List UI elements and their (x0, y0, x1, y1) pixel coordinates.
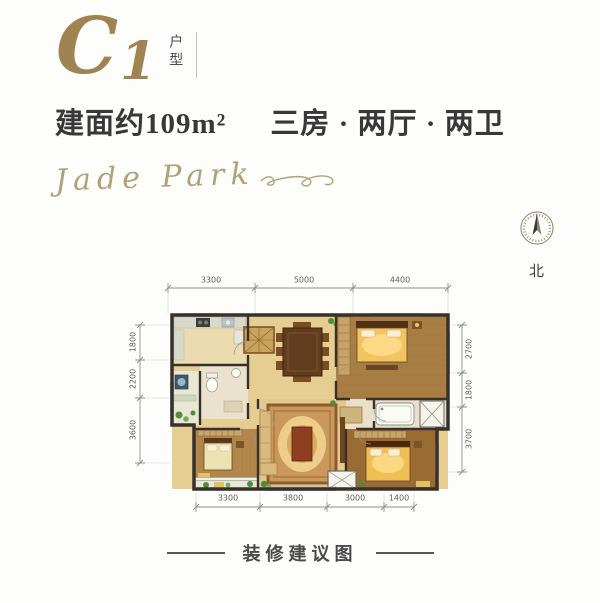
layout-text: 三房 · 两厅 · 两卫 (270, 100, 504, 142)
caption-line-left (167, 552, 225, 554)
wardrobe-icon (198, 430, 242, 436)
footer-caption: 装修建议图 (0, 540, 600, 566)
brand-logo: Jade Park (55, 160, 339, 195)
unit-code-number: 1 (120, 36, 156, 88)
dim-label-left-2: 2200 (129, 369, 138, 389)
plant-icon (328, 318, 334, 324)
dim-label-left-1: 1800 (129, 332, 138, 352)
floor-plan (170, 313, 452, 493)
bed-icon (204, 438, 232, 443)
coffee-table-icon (292, 427, 312, 461)
dim-label-bottom-2: 3800 (283, 494, 303, 503)
caption-line-right (376, 552, 434, 554)
bed-icon (356, 321, 408, 328)
compass: 北 (512, 203, 562, 281)
wardrobe-icon (338, 317, 350, 375)
caption-text: 装修建议图 (243, 540, 358, 566)
dim-label-top-1: 3300 (201, 276, 221, 285)
dim-label-top-2: 5000 (294, 276, 314, 285)
dim-label-bottom-1: 3300 (218, 494, 238, 503)
brand-logo-text: Jade Park (54, 157, 255, 199)
unit-code-letter: C (56, 8, 118, 86)
flourish-icon (259, 163, 339, 193)
wardrobe-icon (354, 431, 406, 438)
dim-label-bottom-3: 3000 (345, 494, 365, 503)
plant-icon (203, 482, 209, 488)
dim-label-left-3: 3600 (129, 420, 138, 440)
plant-icon (261, 481, 267, 487)
bay-window (328, 471, 356, 489)
area-text: 建面约109m² (55, 100, 226, 142)
toilet-icon (207, 378, 218, 392)
north-label: 北 (512, 260, 562, 281)
dim-label-top-3: 4400 (390, 276, 410, 285)
dim-label-right-1: 2700 (465, 339, 474, 359)
dim-label-right-2: 1800 (465, 380, 474, 400)
tv-cabinet-icon (340, 417, 345, 463)
spec-row: 建面约109m² 三房 · 两厅 · 两卫 (55, 100, 555, 142)
dim-label-right-3: 3700 (465, 429, 474, 449)
unit-code-suffix: 户型 (166, 34, 186, 70)
floor-plan-area: 3300 5000 4400 1800 2200 3600 2700 1800 … (135, 275, 470, 520)
divider (196, 32, 197, 78)
dining-table-icon (283, 328, 322, 376)
unit-code: C 1 户型 (56, 8, 197, 88)
compass-icon (512, 203, 562, 253)
dim-label-bottom-4: 1400 (389, 494, 409, 503)
bed-icon (366, 441, 410, 447)
washbasin-icon (232, 369, 241, 378)
